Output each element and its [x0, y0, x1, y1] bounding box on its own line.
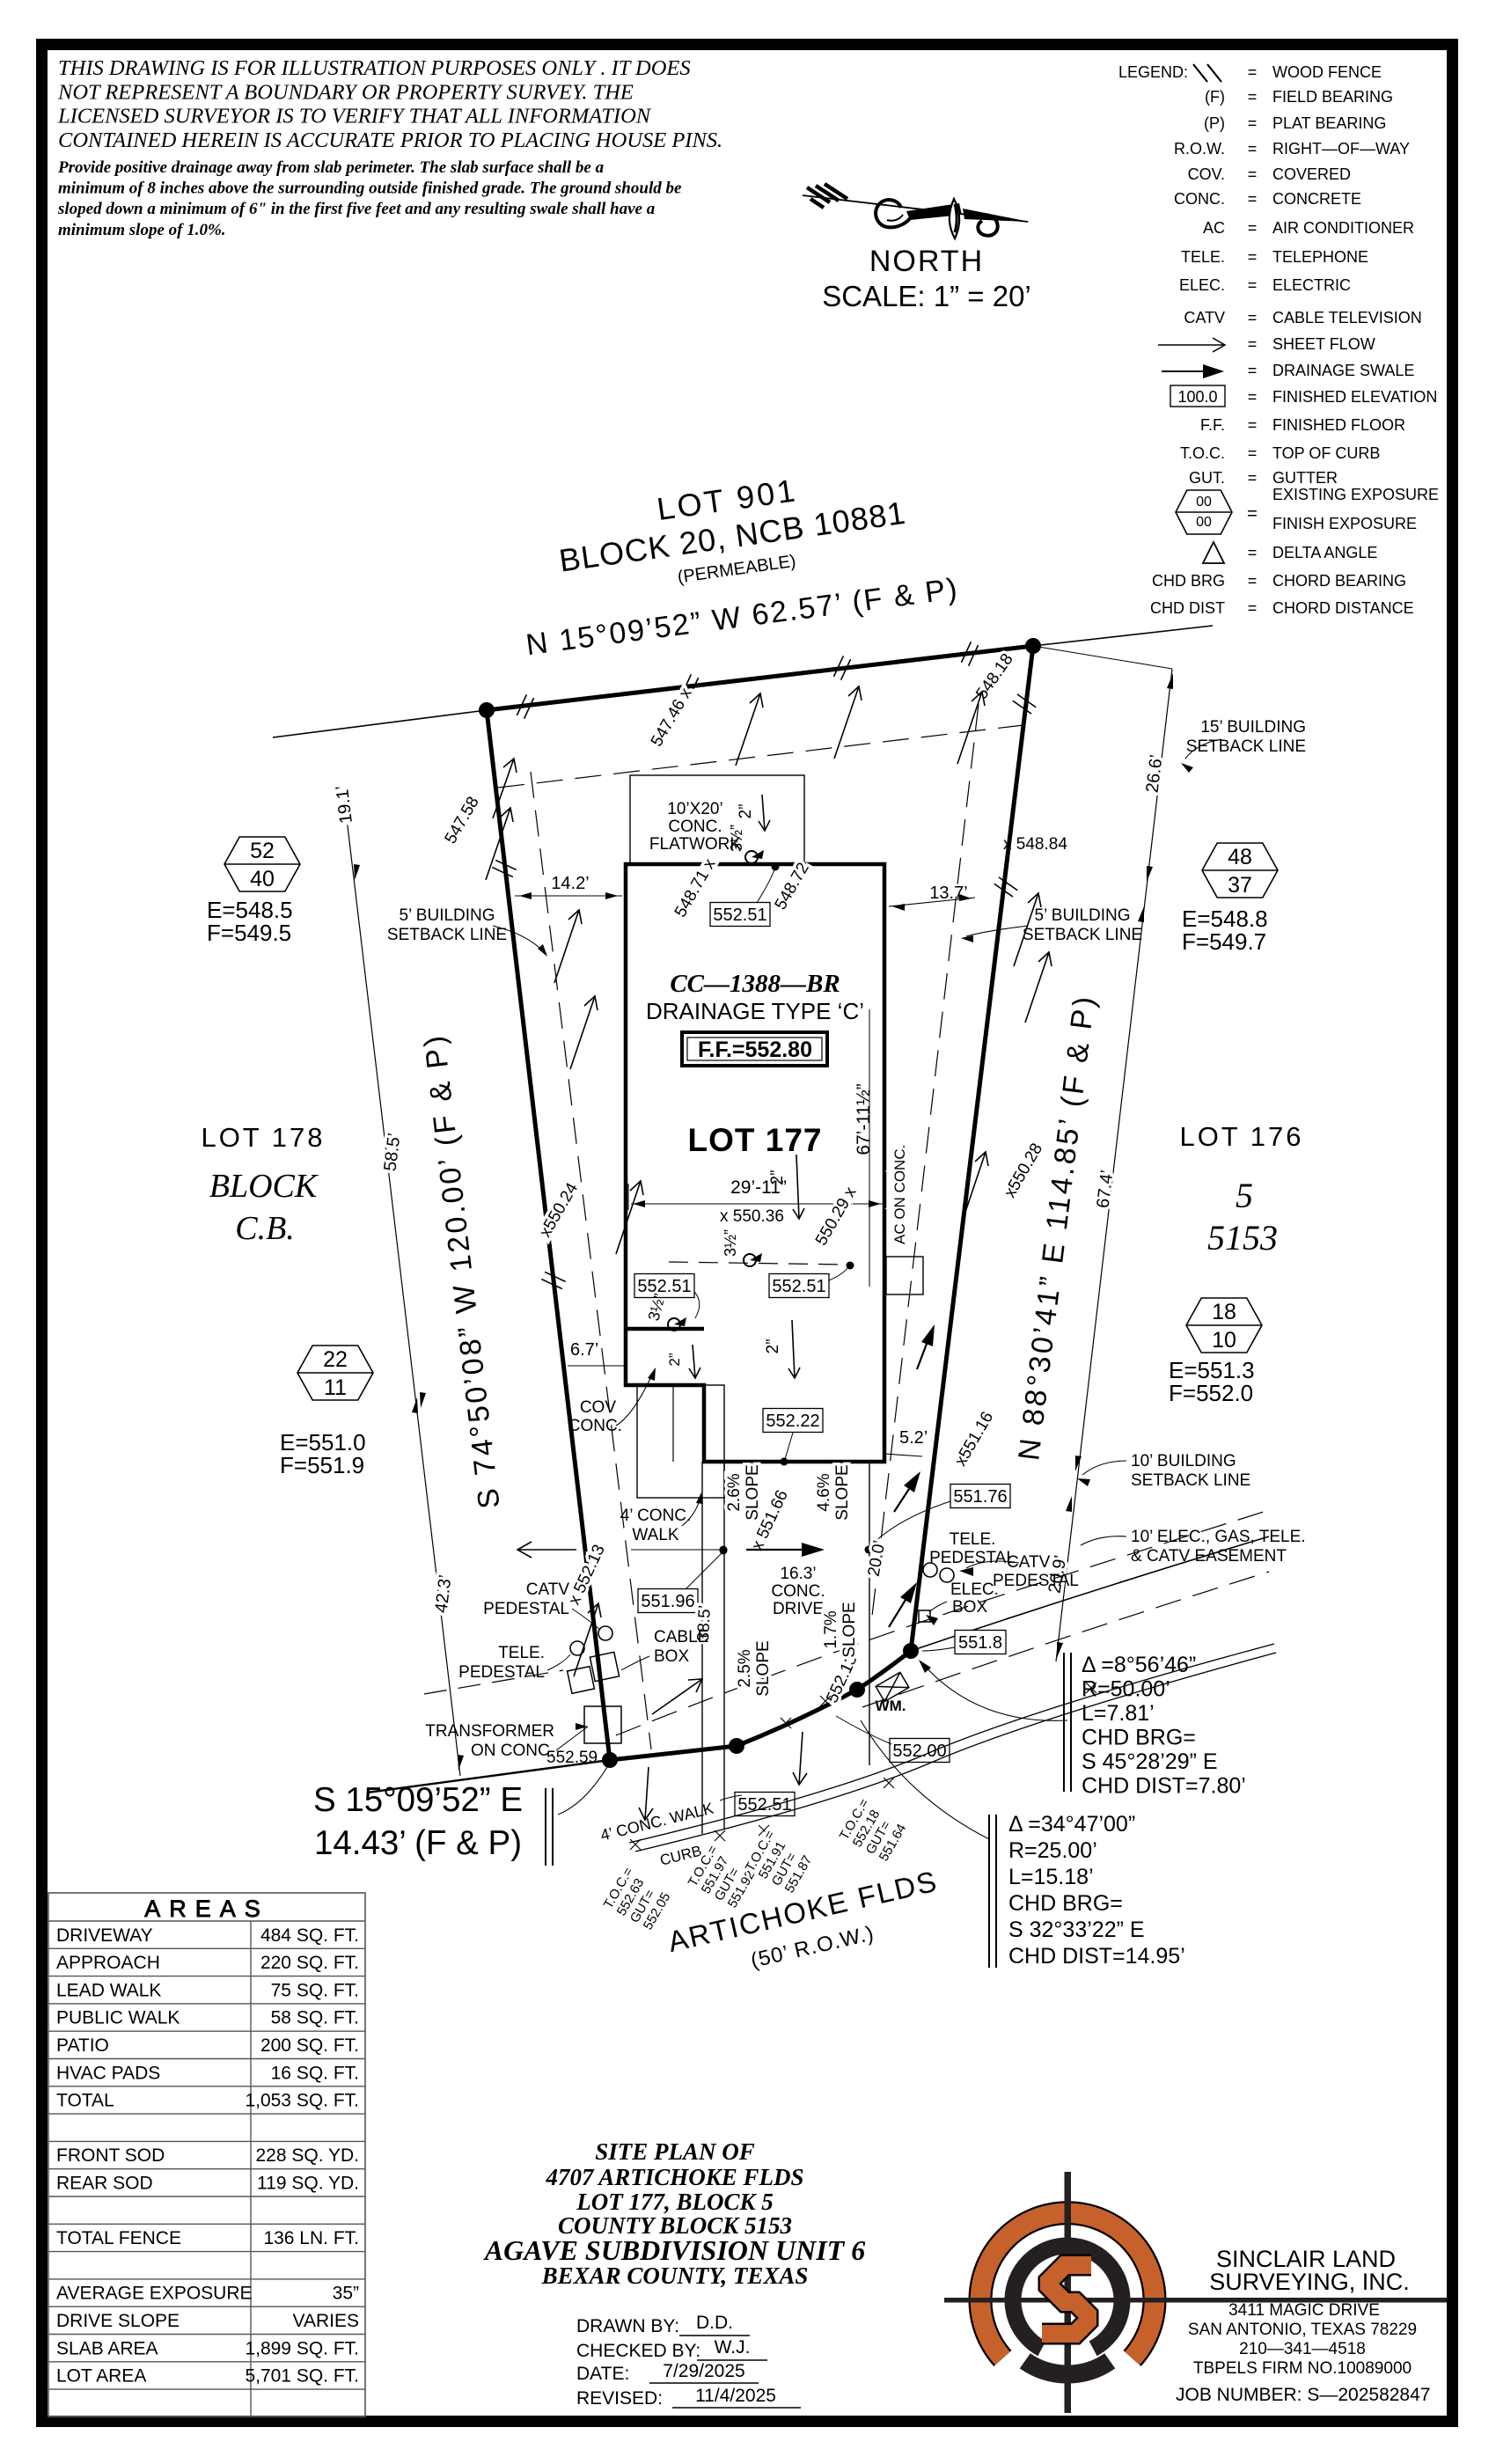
svg-text:SETBACK LINE: SETBACK LINE — [1023, 926, 1142, 944]
svg-text:F=552.0: F=552.0 — [1169, 1380, 1253, 1406]
svg-text:TOTAL: TOTAL — [56, 2091, 114, 2111]
svg-text:00: 00 — [1196, 515, 1212, 530]
svg-text:4’ CONC.: 4’ CONC. — [620, 1507, 692, 1525]
svg-text:minimum of 8 inches above the: minimum of 8 inches above the surroundin… — [58, 180, 682, 198]
svg-text:SETBACK LINE: SETBACK LINE — [1131, 1471, 1250, 1490]
svg-text:ELEC.: ELEC. — [1179, 276, 1225, 294]
svg-text:10’X20’: 10’X20’ — [667, 800, 722, 818]
svg-text:PLAT BEARING: PLAT BEARING — [1272, 114, 1386, 132]
svg-text:NOT REPRESENT A BOUNDARY OR PR: NOT REPRESENT A BOUNDARY OR PROPERTY SUR… — [57, 80, 634, 104]
svg-text:=: = — [1248, 276, 1258, 294]
svg-text:F=551.9: F=551.9 — [280, 1452, 364, 1478]
svg-text:C.B.: C.B. — [235, 1210, 295, 1247]
svg-text:AREAS: AREAS — [144, 1896, 269, 1922]
svg-text:18: 18 — [1212, 1300, 1236, 1324]
svg-text:(P): (P) — [1204, 114, 1225, 132]
svg-text:Δ =8°56’46”: Δ =8°56’46” — [1082, 1653, 1196, 1677]
svg-text:CONC.: CONC. — [771, 1582, 825, 1601]
svg-text:REAR SOD: REAR SOD — [56, 2174, 153, 2194]
svg-text:=: = — [1248, 63, 1258, 81]
svg-text:10: 10 — [1212, 1328, 1236, 1353]
svg-text:BOX: BOX — [654, 1647, 689, 1666]
svg-text:22: 22 — [323, 1347, 348, 1372]
svg-text:551.96: 551.96 — [641, 1592, 694, 1611]
svg-text:L=7.81’: L=7.81’ — [1082, 1701, 1155, 1726]
svg-text:5: 5 — [1236, 1176, 1253, 1215]
svg-text:=: = — [1248, 362, 1258, 379]
svg-text:F=549.5: F=549.5 — [207, 920, 291, 946]
svg-text:200 SQ. FT.: 200 SQ. FT. — [260, 2035, 359, 2056]
svg-text:=: = — [1248, 444, 1258, 462]
svg-text:ELEC.: ELEC. — [950, 1580, 999, 1599]
svg-text:minimum slope of 1.0%.: minimum slope of 1.0%. — [58, 221, 226, 239]
svg-text:CHD DIST=7.80’: CHD DIST=7.80’ — [1082, 1774, 1246, 1799]
svg-text:CONCRETE: CONCRETE — [1272, 190, 1361, 208]
svg-text:75 SQ. FT.: 75 SQ. FT. — [271, 1980, 359, 2000]
svg-text:LICENSED SURVEYOR IS TO VERIFY: LICENSED SURVEYOR IS TO VERIFY THAT ALL … — [57, 105, 652, 128]
svg-text:35”: 35” — [333, 2284, 359, 2304]
svg-text:484 SQ. FT.: 484 SQ. FT. — [260, 1925, 359, 1946]
svg-text:R.O.W.: R.O.W. — [1174, 140, 1225, 158]
svg-text:552.51: 552.51 — [737, 1795, 791, 1815]
svg-text:AIR CONDITIONER: AIR CONDITIONER — [1272, 219, 1414, 237]
svg-text:S 45°28’29” E: S 45°28’29” E — [1082, 1749, 1218, 1774]
svg-text:EXISTING EXPOSURE: EXISTING EXPOSURE — [1272, 486, 1439, 503]
svg-text:VARIES: VARIES — [293, 2311, 359, 2331]
svg-text:AVERAGE EXPOSURE: AVERAGE EXPOSURE — [56, 2284, 253, 2304]
svg-text:Δ =34°47’00”: Δ =34°47’00” — [1008, 1812, 1135, 1837]
svg-text:67’-11½”: 67’-11½” — [854, 1083, 874, 1155]
svg-text:FINISHED FLOOR: FINISHED FLOOR — [1272, 416, 1405, 434]
svg-text:=: = — [1248, 114, 1258, 132]
svg-text:COV.: COV. — [1188, 165, 1225, 183]
svg-text:BEXAR COUNTY, TEXAS: BEXAR COUNTY, TEXAS — [541, 2262, 809, 2289]
svg-text:551.76: 551.76 — [953, 1487, 1007, 1507]
svg-text:TRANSFORMER: TRANSFORMER — [425, 1722, 554, 1741]
svg-text:GUTTER: GUTTER — [1272, 469, 1338, 487]
svg-text:SLOPE: SLOPE — [833, 1464, 852, 1520]
svg-text:7/29/2025: 7/29/2025 — [663, 2361, 744, 2381]
svg-text:SLOPE: SLOPE — [754, 1640, 773, 1696]
svg-text:AC: AC — [1203, 219, 1225, 237]
svg-text:PEDESTAL: PEDESTAL — [929, 1549, 1016, 1567]
svg-text:=: = — [1248, 599, 1258, 617]
svg-text:11: 11 — [324, 1375, 347, 1400]
svg-text:5’ BUILDING: 5’ BUILDING — [1034, 906, 1130, 925]
svg-text:CHD DIST=14.95’: CHD DIST=14.95’ — [1008, 1944, 1185, 1969]
svg-text:CONC.: CONC. — [1174, 190, 1225, 208]
svg-text:37: 37 — [1228, 873, 1252, 898]
svg-text:LOT 177, BLOCK 5: LOT 177, BLOCK 5 — [576, 2189, 774, 2215]
svg-text:CHECKED BY:: CHECKED BY: — [576, 2341, 700, 2361]
svg-text:2”: 2” — [666, 1353, 683, 1366]
svg-text:LOT AREA: LOT AREA — [56, 2366, 146, 2387]
svg-text:F.F.=552.80: F.F.=552.80 — [698, 1038, 812, 1062]
svg-text:136 LN. FT.: 136 LN. FT. — [263, 2228, 359, 2248]
svg-text:R=50.00’: R=50.00’ — [1082, 1677, 1170, 1702]
svg-text:LEGEND:: LEGEND: — [1118, 63, 1188, 81]
svg-text:SLOPE: SLOPE — [744, 1464, 762, 1520]
svg-text:00: 00 — [1196, 495, 1212, 510]
svg-text:=: = — [1248, 335, 1258, 353]
svg-text:DRIVE: DRIVE — [773, 1600, 824, 1618]
svg-text:2”: 2” — [764, 1339, 782, 1354]
svg-text:552.00: 552.00 — [892, 1742, 946, 1761]
svg-text:LOT 177: LOT 177 — [688, 1122, 823, 1158]
svg-text:REVISED:: REVISED: — [576, 2388, 663, 2409]
svg-text:CHD BRG=: CHD BRG= — [1082, 1726, 1196, 1750]
svg-text:R=25.00’: R=25.00’ — [1008, 1838, 1097, 1863]
svg-text:AC ON CONC.: AC ON CONC. — [891, 1145, 908, 1244]
svg-text:WALK: WALK — [632, 1526, 678, 1544]
svg-text:=: = — [1248, 416, 1258, 434]
svg-text:NORTH: NORTH — [869, 245, 984, 278]
svg-text:BOX: BOX — [952, 1598, 987, 1617]
svg-text:CHD BRG=: CHD BRG= — [1008, 1891, 1123, 1916]
svg-text:PUBLIC WALK: PUBLIC WALK — [56, 2008, 180, 2028]
svg-text:SCALE: 1” = 20’: SCALE: 1” = 20’ — [822, 280, 1031, 312]
svg-text:CC—1388—BR: CC—1388—BR — [670, 970, 840, 998]
svg-text:1.7%: 1.7% — [822, 1610, 840, 1648]
svg-text:14.43’ (F & P): 14.43’ (F & P) — [314, 1824, 522, 1862]
svg-text:5153: 5153 — [1207, 1218, 1278, 1258]
svg-text:GUT.: GUT. — [1189, 469, 1225, 487]
svg-text:=: = — [1248, 190, 1258, 208]
svg-text:PEDESTAL: PEDESTAL — [483, 1600, 569, 1618]
svg-text:119 SQ. YD.: 119 SQ. YD. — [257, 2174, 359, 2194]
svg-text:RIGHT—OF—WAY: RIGHT—OF—WAY — [1272, 140, 1410, 158]
svg-text:W.J.: W.J. — [715, 2337, 751, 2358]
svg-text:TBPELS FIRM NO.10089000: TBPELS FIRM NO.10089000 — [1193, 2359, 1412, 2378]
svg-text:SHEET FLOW: SHEET FLOW — [1272, 335, 1375, 353]
svg-text:TELE.: TELE. — [950, 1530, 996, 1549]
svg-text:TELE.: TELE. — [1181, 248, 1225, 266]
svg-text:DELTA ANGLE: DELTA ANGLE — [1272, 544, 1377, 561]
svg-text:TELE.: TELE. — [498, 1644, 545, 1662]
svg-text:ELECTRIC: ELECTRIC — [1272, 276, 1351, 294]
svg-text:TOTAL FENCE: TOTAL FENCE — [56, 2228, 181, 2248]
svg-text:DRIVE SLOPE: DRIVE SLOPE — [56, 2311, 180, 2331]
svg-text:SURVEYING, INC.: SURVEYING, INC. — [1209, 2269, 1410, 2295]
svg-text:WOOD FENCE: WOOD FENCE — [1272, 63, 1382, 81]
svg-text:228 SQ. YD.: 228 SQ. YD. — [255, 2145, 359, 2166]
svg-text:TOP OF CURB: TOP OF CURB — [1272, 444, 1380, 462]
svg-text:3½”: 3½” — [728, 825, 745, 852]
svg-text:16.3’: 16.3’ — [780, 1565, 816, 1583]
svg-text:4.6%: 4.6% — [815, 1473, 833, 1511]
svg-text:6.7’: 6.7’ — [570, 1340, 598, 1360]
svg-text:CONC.: CONC. — [668, 818, 722, 836]
svg-text:CHORD DISTANCE: CHORD DISTANCE — [1272, 599, 1414, 617]
svg-text:WM.: WM. — [876, 1698, 906, 1714]
svg-text:TELEPHONE: TELEPHONE — [1272, 248, 1368, 266]
svg-text:HVAC PADS: HVAC PADS — [56, 2063, 160, 2083]
svg-text:x 548.84: x 548.84 — [1003, 835, 1067, 854]
svg-text:551.8: 551.8 — [958, 1633, 1002, 1653]
svg-text:10’ ELEC., GAS, TELE.: 10’ ELEC., GAS, TELE. — [1131, 1528, 1306, 1546]
svg-text:=: = — [1248, 219, 1258, 237]
svg-text:THIS DRAWING IS FOR ILLUSTRATI: THIS DRAWING IS FOR ILLUSTRATION PURPOSE… — [58, 56, 691, 80]
svg-text:L=15.18’: L=15.18’ — [1008, 1865, 1094, 1889]
svg-text:552.51: 552.51 — [713, 906, 766, 925]
svg-text:52: 52 — [250, 839, 275, 863]
svg-text:=: = — [1248, 388, 1258, 406]
svg-text:552.51: 552.51 — [772, 1277, 825, 1296]
svg-text:5,701 SQ. FT.: 5,701 SQ. FT. — [245, 2366, 359, 2387]
svg-text:=: = — [1248, 88, 1258, 106]
svg-text:2.5%: 2.5% — [736, 1649, 754, 1687]
svg-text:F.F.: F.F. — [1200, 416, 1225, 434]
svg-text:15’ BUILDING: 15’ BUILDING — [1200, 718, 1306, 737]
svg-text:JOB NUMBER: S—202582847: JOB NUMBER: S—202582847 — [1176, 2385, 1430, 2405]
svg-text:PATIO: PATIO — [56, 2035, 109, 2056]
svg-text:210—341—4518: 210—341—4518 — [1239, 2340, 1366, 2358]
svg-text:3411 MAGIC DRIVE: 3411 MAGIC DRIVE — [1228, 2301, 1380, 2320]
svg-text:CHORD BEARING: CHORD BEARING — [1272, 572, 1406, 590]
svg-text:48: 48 — [1228, 845, 1252, 869]
svg-text:T.O.C.: T.O.C. — [1180, 444, 1225, 462]
svg-text:PEDESTAL: PEDESTAL — [993, 1572, 1079, 1590]
svg-text:SETBACK LINE: SETBACK LINE — [1186, 737, 1306, 756]
svg-text:SETBACK LINE: SETBACK LINE — [387, 926, 507, 944]
svg-text:DRIVEWAY: DRIVEWAY — [56, 1925, 153, 1946]
svg-text:& CATV EASEMENT: & CATV EASEMENT — [1131, 1547, 1287, 1566]
svg-text:CABLE TELEVISION: CABLE TELEVISION — [1272, 309, 1422, 326]
svg-text:3½”: 3½” — [722, 1229, 739, 1257]
svg-text:220 SQ. FT.: 220 SQ. FT. — [260, 1953, 359, 1973]
svg-text:4707 ARTICHOKE FLDS: 4707 ARTICHOKE FLDS — [545, 2164, 803, 2190]
svg-text:14.2’: 14.2’ — [551, 874, 589, 893]
svg-text:SLAB AREA: SLAB AREA — [56, 2338, 158, 2358]
svg-text:COVERED: COVERED — [1272, 165, 1351, 183]
svg-text:F=549.7: F=549.7 — [1182, 928, 1266, 955]
svg-text:CHD BRG: CHD BRG — [1152, 572, 1225, 590]
svg-text:CONTAINED HEREIN IS ACCURATE P: CONTAINED HEREIN IS ACCURATE PRIOR TO PL… — [58, 128, 722, 152]
svg-text:PEDESTAL: PEDESTAL — [458, 1663, 545, 1682]
svg-text:CABLE: CABLE — [654, 1628, 708, 1646]
svg-text:FIELD BEARING: FIELD BEARING — [1272, 88, 1393, 106]
svg-text:FINISH EXPOSURE: FINISH EXPOSURE — [1272, 515, 1417, 532]
svg-text:552.22: 552.22 — [766, 1412, 819, 1431]
svg-text:5’ BUILDING: 5’ BUILDING — [399, 906, 495, 925]
svg-text:10’ BUILDING: 10’ BUILDING — [1131, 1452, 1236, 1470]
svg-text:ON CONC.: ON CONC. — [471, 1742, 554, 1760]
svg-text:FINISHED ELEVATION: FINISHED ELEVATION — [1272, 388, 1437, 406]
svg-text:=: = — [1248, 469, 1258, 487]
svg-text:BLOCK: BLOCK — [209, 1168, 319, 1205]
svg-text:sloped down a minimum of 6" in: sloped down a minimum of 6" in the first… — [57, 200, 656, 218]
svg-text:=: = — [1247, 504, 1258, 524]
svg-text:CHD DIST: CHD DIST — [1150, 599, 1225, 617]
svg-text:DRAINAGE TYPE ‘C’: DRAINAGE TYPE ‘C’ — [646, 998, 864, 1024]
svg-text:1,053 SQ. FT.: 1,053 SQ. FT. — [245, 2091, 359, 2111]
svg-text:FRONT SOD: FRONT SOD — [56, 2145, 165, 2166]
svg-text:CATV: CATV — [1184, 309, 1225, 326]
svg-text:COV: COV — [580, 1398, 617, 1417]
svg-text:40: 40 — [250, 867, 275, 891]
svg-text:SAN ANTONIO, TEXAS 78229: SAN ANTONIO, TEXAS 78229 — [1188, 2321, 1417, 2339]
svg-text:100.0: 100.0 — [1177, 388, 1217, 406]
svg-text:=: = — [1248, 248, 1258, 266]
svg-text:SLOPE: SLOPE — [840, 1602, 859, 1657]
svg-text:=: = — [1248, 140, 1258, 158]
svg-text:CATV: CATV — [526, 1580, 570, 1599]
svg-text:S 15°09’52” E: S 15°09’52” E — [313, 1781, 523, 1819]
svg-text:2”: 2” — [737, 804, 755, 819]
svg-text:16 SQ. FT.: 16 SQ. FT. — [271, 2063, 359, 2083]
svg-text:DATE:: DATE: — [576, 2364, 629, 2384]
svg-text:=: = — [1248, 165, 1258, 183]
svg-text:11/4/2025: 11/4/2025 — [695, 2386, 776, 2406]
svg-text:Provide positive drainage away: Provide positive drainage away from slab… — [57, 158, 605, 177]
svg-text:DRAWN BY:: DRAWN BY: — [576, 2316, 679, 2336]
svg-text:=: = — [1248, 544, 1258, 561]
svg-text:DRAINAGE SWALE: DRAINAGE SWALE — [1272, 362, 1414, 379]
svg-text:LEAD WALK: LEAD WALK — [56, 1980, 161, 2000]
svg-text:5.2’: 5.2’ — [899, 1428, 928, 1448]
svg-text:552.51: 552.51 — [637, 1277, 691, 1296]
svg-text:LOT 178: LOT 178 — [201, 1122, 325, 1153]
svg-text:D.D.: D.D. — [696, 2313, 733, 2333]
svg-text:CONC.: CONC. — [568, 1417, 622, 1435]
svg-text:x 550.36: x 550.36 — [720, 1207, 784, 1226]
svg-text:1,899 SQ. FT.: 1,899 SQ. FT. — [245, 2338, 359, 2358]
svg-text:LOT 176: LOT 176 — [1179, 1121, 1303, 1152]
svg-text:(F): (F) — [1205, 88, 1225, 106]
svg-text:S 32°33’22” E: S 32°33’22” E — [1008, 1918, 1145, 1942]
svg-text:58 SQ. FT.: 58 SQ. FT. — [271, 2008, 359, 2028]
svg-text:=: = — [1248, 309, 1258, 326]
svg-text:2”: 2” — [768, 1170, 787, 1185]
svg-text:2.6%: 2.6% — [725, 1473, 744, 1511]
svg-text:=: = — [1248, 572, 1258, 590]
svg-text:SITE PLAN OF: SITE PLAN OF — [595, 2138, 755, 2165]
svg-text:APPROACH: APPROACH — [56, 1953, 160, 1973]
svg-text:AGAVE SUBDIVISION UNIT 6: AGAVE SUBDIVISION UNIT 6 — [483, 2234, 865, 2266]
